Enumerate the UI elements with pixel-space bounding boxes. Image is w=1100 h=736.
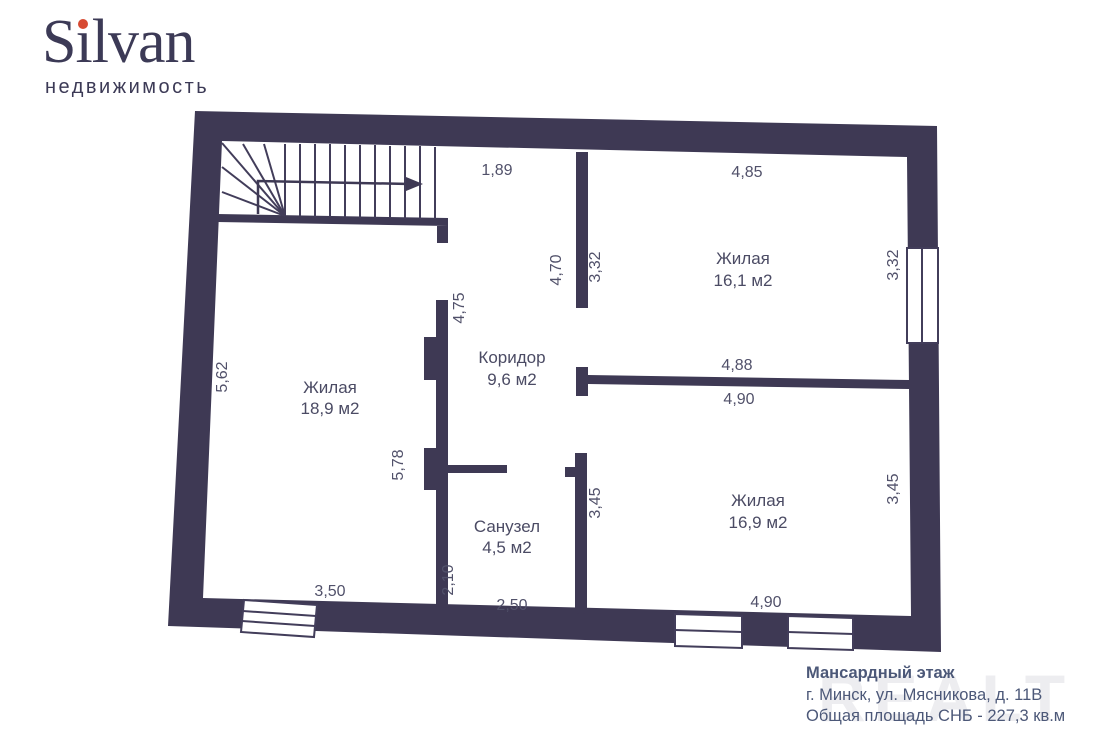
wall-corridor-room161 (576, 152, 588, 308)
dimension-label: 4,90 (723, 391, 754, 408)
plan-footer: Мансардный этаж г. Минск, ул. Мясникова,… (806, 663, 1065, 728)
pilaster-lower (424, 448, 436, 490)
dimension-label: 1,89 (481, 162, 512, 179)
footer-address: г. Минск, ул. Мясникова, д. 11В (806, 685, 1065, 707)
logo-brand-rest: lvan (92, 8, 195, 76)
bathroom-door-stub (565, 467, 575, 477)
dimension-label: 4,85 (731, 164, 762, 181)
dimension-label: 2,50 (496, 597, 527, 614)
dimension-label: 3,32 (587, 251, 604, 282)
logo-brand-i: ı (75, 10, 91, 75)
window-bottom-right (788, 616, 853, 650)
room-area: 16,1 м2 (714, 271, 773, 290)
window-bottom-left (241, 600, 317, 637)
pilaster-upper (424, 337, 436, 380)
floor-plan: 1,89 4,85 4,70 3,32 3,32 4,75 5,62 4,88 … (0, 0, 1100, 734)
dimension-label: 4,88 (721, 357, 752, 374)
wall-cap-between-rooms (576, 367, 588, 396)
room-labels: Жилая 18,9 м2 Жилая 16,1 м2 Жилая 16,9 м… (301, 249, 788, 557)
stair-wall-stub (437, 226, 448, 243)
room-label: Санузел (474, 517, 540, 536)
window-bottom-center (675, 614, 742, 648)
room-label: Жилая (731, 491, 785, 510)
dimension-label: 4,70 (548, 254, 565, 285)
room-label: Жилая (303, 378, 357, 397)
stair-bottom-wall (217, 214, 448, 226)
dimension-label: 3,32 (885, 249, 902, 280)
dimension-label: 3,50 (314, 583, 345, 600)
room-label: Жилая (716, 249, 770, 268)
room-area: 9,6 м2 (487, 370, 537, 389)
dimension-label: 2,10 (440, 564, 457, 595)
logo-subtitle: недвижимость (45, 76, 209, 99)
logo-brand-text: Sılvan (42, 10, 194, 75)
dimension-label: 4,75 (451, 292, 468, 323)
silvan-logo: Sılvan недвижимость (42, 10, 209, 99)
dimension-label: 5,62 (214, 361, 231, 392)
dimension-label: 5,78 (390, 449, 407, 480)
bathroom-right-wall (575, 453, 587, 614)
footer-floor-title: Мансардный этаж (806, 663, 1065, 685)
room-area: 16,9 м2 (729, 513, 788, 532)
footer-total-area: Общая площадь СНБ - 227,3 кв.м (806, 706, 1065, 728)
logo-brand-s: S (42, 8, 75, 76)
dimension-label: 3,45 (885, 473, 902, 504)
dimension-label: 3,45 (587, 487, 604, 518)
window-right-wall (907, 248, 938, 343)
stair-winder-lines (222, 143, 285, 216)
page: { "logo": { "brand": "Silvan", "brand_pr… (0, 0, 1100, 734)
bathroom-top-wall (448, 465, 507, 473)
room-label: Коридор (478, 348, 545, 367)
wall-room189-corridor (436, 300, 448, 608)
room-area: 4,5 м2 (482, 538, 532, 557)
wall-room161-room169 (588, 375, 909, 389)
staircase-icon (222, 143, 435, 219)
room-area: 18,9 м2 (301, 399, 360, 418)
dimension-label: 4,90 (750, 594, 781, 611)
